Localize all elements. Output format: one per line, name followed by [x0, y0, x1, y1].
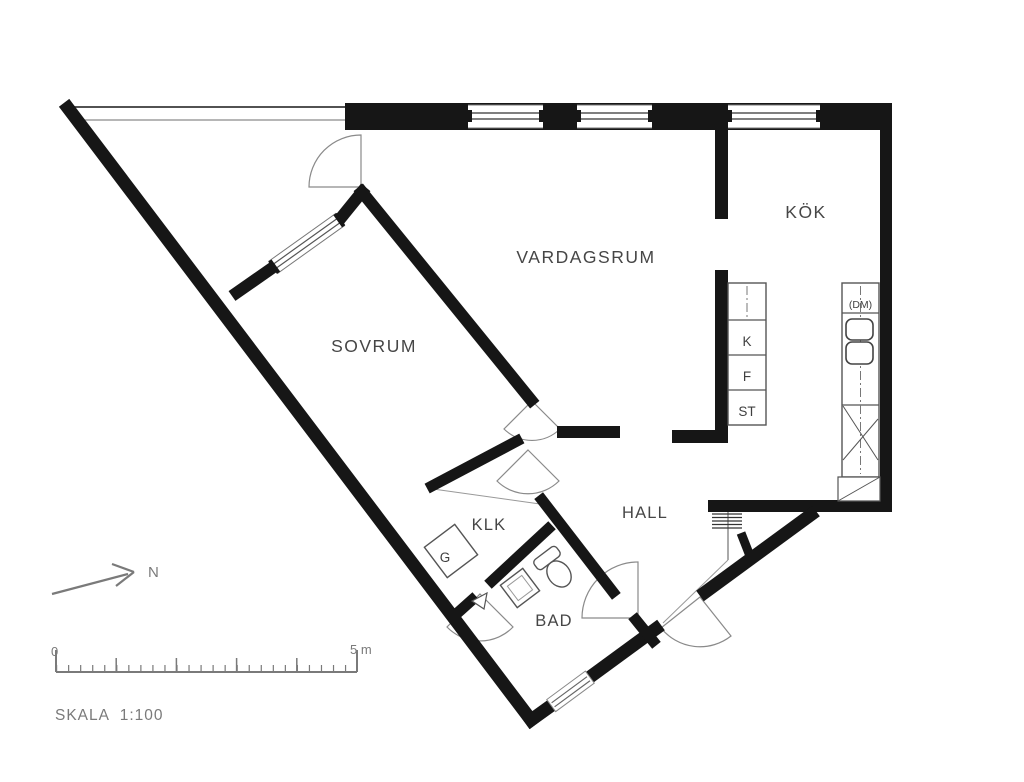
entry-door-arc — [661, 597, 731, 647]
north-arrow-head-upper — [112, 564, 134, 572]
label-freezer: F — [743, 369, 751, 384]
east-wall — [880, 103, 892, 512]
corner-shaft-box — [838, 477, 880, 501]
interior-walls — [232, 103, 728, 641]
label-hall: HALL — [622, 504, 668, 522]
toilet — [532, 545, 578, 594]
label-dishwasher: (DM) — [849, 299, 872, 311]
kitchen-fixtures — [728, 283, 880, 501]
label-wardrobe: G — [440, 550, 451, 565]
bedroom-window — [268, 213, 345, 274]
north-arrow-shaft — [52, 574, 128, 594]
label-pantry: ST — [738, 404, 755, 419]
southeast-wall — [708, 500, 892, 512]
north-window-2 — [577, 105, 652, 129]
closet-door-arc — [497, 450, 559, 494]
sink-bowl-1 — [846, 319, 873, 340]
label-vardagsrum: VARDAGSRUM — [516, 247, 655, 267]
label-klk: KLK — [472, 516, 507, 534]
label-sovrum: SOVRUM — [331, 336, 417, 356]
kitchen-partition-upper — [715, 103, 728, 219]
bedroom-livingroom-wall — [362, 192, 531, 400]
entry-details — [712, 514, 750, 556]
scale-zero-label: 0 — [51, 644, 58, 659]
north-label: N — [148, 564, 159, 581]
scale-end-label: 5 m — [350, 642, 372, 657]
scale-bar — [56, 650, 357, 672]
label-kok: KÖK — [785, 202, 826, 222]
sink-bowl-2 — [846, 342, 873, 364]
entry-stub-wall — [741, 533, 750, 556]
north-window-1 — [468, 105, 543, 129]
floor-plan-page: VARDAGSRUM KÖK SOVRUM HALL KLK BAD G K F… — [0, 0, 1024, 782]
north-arrow — [52, 564, 134, 594]
bedroom-northwest-wall-b — [232, 266, 275, 296]
kitchen-counter — [842, 283, 879, 477]
bathroom-window — [547, 671, 595, 712]
south-diagonal-wall-c — [700, 511, 816, 596]
entry-hatch-marks — [712, 514, 742, 528]
scale-text: SKALA 1:100 — [55, 707, 164, 724]
hall-north-wall — [557, 426, 620, 438]
floor-plan-drawing: VARDAGSRUM KÖK SOVRUM HALL KLK BAD G K F… — [0, 0, 1024, 782]
south-diagonal-wall-a — [531, 705, 552, 720]
balcony-door-arc — [309, 135, 361, 187]
bedroom-northwest-wall-a — [340, 192, 362, 219]
kitchen-partition-lower — [715, 270, 728, 437]
label-bad: BAD — [535, 612, 573, 630]
west-diagonal-wall — [68, 108, 531, 720]
wardrobe-box — [424, 524, 477, 577]
north-window-3 — [728, 105, 820, 129]
label-fridge: K — [742, 334, 751, 349]
